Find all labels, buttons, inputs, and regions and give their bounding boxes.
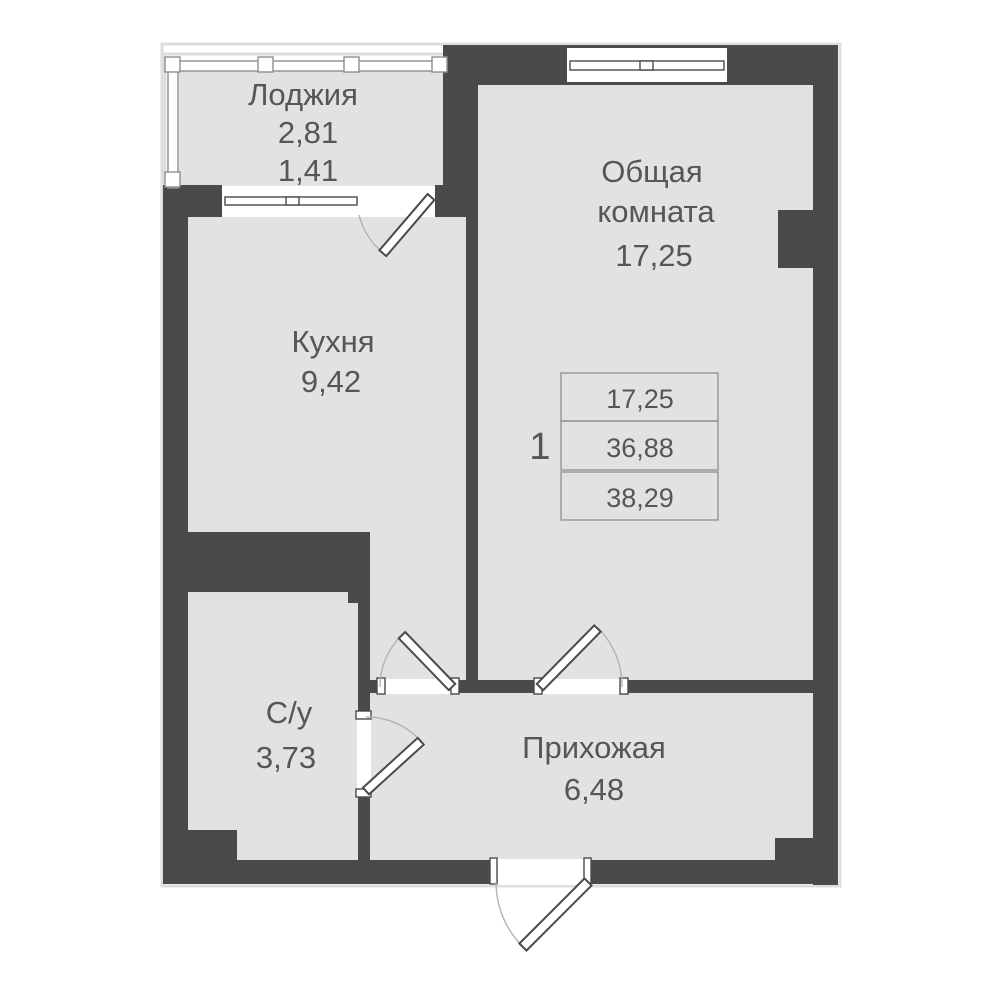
wall-kitchen-bathroom [188, 532, 348, 592]
wall-kitchen-bathroom-step [348, 532, 370, 603]
glazing-post [432, 57, 447, 72]
wall-balcony-door-side [435, 185, 447, 217]
living-room-name-line2: комната [597, 194, 715, 229]
info-table-row1-value: 17,25 [606, 384, 674, 414]
floor-plan-drawing: 1 17,25 36,88 38,29 Лоджия 2,81 1,41 Общ… [0, 0, 1000, 1000]
bathroom-area: 3,73 [256, 740, 316, 775]
wall-pilaster-living [778, 210, 813, 268]
wall-left [163, 185, 188, 884]
door-entrance-swing-arc [496, 882, 523, 947]
door-bathroom-jamb-top [356, 711, 371, 719]
wall-hallway-right [628, 680, 813, 693]
info-table-row3-value: 38,29 [606, 483, 674, 513]
wall-bathroom-right-lower [358, 790, 370, 862]
info-table-row2-value: 36,88 [606, 433, 674, 463]
door-entrance-opening [490, 859, 591, 885]
wall-kitchen-living [466, 217, 478, 683]
wall-kitchen-window-left [188, 185, 222, 217]
wall-loggia-right [443, 45, 478, 217]
wall-right [813, 45, 838, 885]
apartment-number: 1 [529, 426, 550, 468]
door-kitchen-jamb-left [377, 678, 385, 694]
window-living-mullion [640, 61, 653, 70]
loggia-name: Лоджия [248, 77, 358, 112]
living-room-area: 17,25 [615, 238, 693, 273]
glazing-post [165, 172, 180, 187]
door-entrance-leaf [519, 878, 591, 950]
loggia-area-total: 2,81 [278, 115, 338, 150]
hallway-name: Прихожая [522, 730, 666, 765]
glazing-band-left [168, 61, 178, 188]
glazing-post [258, 57, 273, 72]
wall-hallway-mid [459, 680, 535, 693]
door-bathroom-opening [357, 718, 371, 790]
floor-plan-canvas: 1 17,25 36,88 38,29 Лоджия 2,81 1,41 Общ… [0, 0, 1000, 1000]
loggia-area-reduced: 1,41 [278, 153, 338, 188]
glazing-post [165, 57, 180, 72]
door-entrance-jamb-left [490, 858, 497, 884]
bathroom-name: С/у [266, 695, 313, 730]
living-room-name-line1: Общая [601, 154, 702, 189]
wall-bathroom-notch [188, 830, 237, 861]
wall-bathroom-right-upper [358, 603, 370, 718]
glazing-band-top [168, 61, 447, 71]
glazing-post [344, 57, 359, 72]
kitchen-name: Кухня [292, 324, 375, 359]
window-kitchen-mullion [286, 197, 299, 205]
hallway-area: 6,48 [564, 772, 624, 807]
wall-hallway-notch [775, 838, 813, 861]
kitchen-area: 9,42 [301, 364, 361, 399]
